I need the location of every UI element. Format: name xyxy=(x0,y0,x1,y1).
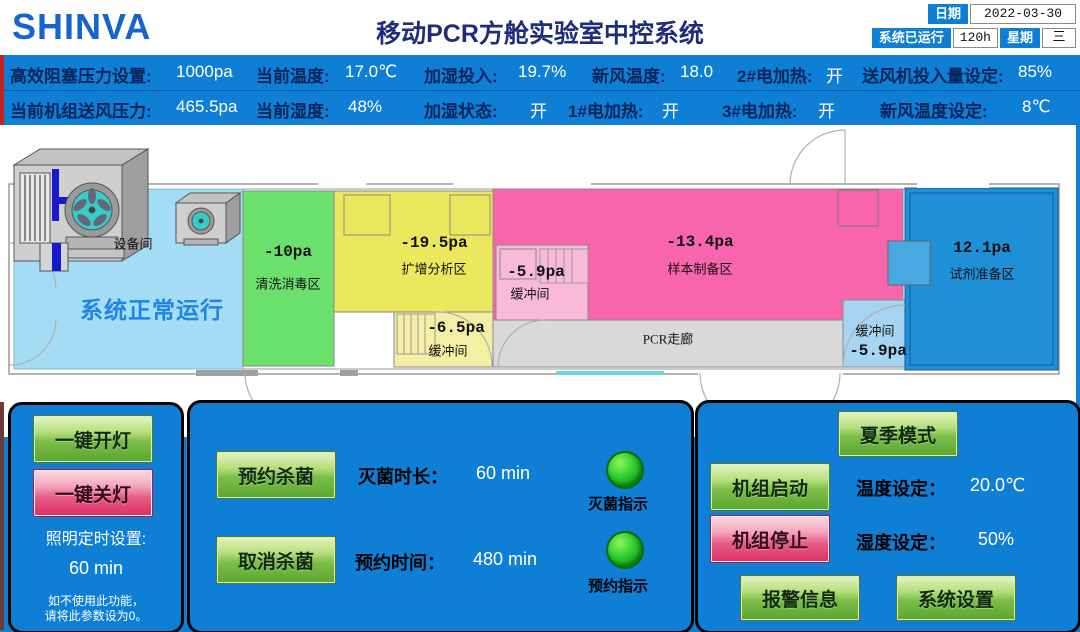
runtime-chip-label: 系统已运行 xyxy=(872,28,951,48)
humidify-state-value: 开 xyxy=(530,97,547,122)
sterilize-led-label: 灭菌指示 xyxy=(588,493,648,514)
sterilize-duration-value[interactable]: 60 min xyxy=(476,463,530,484)
floorplan-drawing xyxy=(0,125,1080,440)
header: SHINVA 移动PCR方舱实验室中控系统 日期 2022-03-30 系统已运… xyxy=(0,0,1080,55)
sample-buffer-pressure: -5.9pa xyxy=(507,263,565,281)
weekday-chip-label: 星期 xyxy=(1000,28,1040,48)
equipment-room-label: 设备间 xyxy=(113,234,152,253)
heater1-value: 开 xyxy=(662,97,679,122)
unit-supply-pressure-value: 465.5pa xyxy=(176,97,237,117)
supply-fan-set-value[interactable]: 85% xyxy=(1018,62,1052,82)
fresh-air-temp-value: 18.0 xyxy=(680,62,713,82)
unit-stop-button[interactable]: 机组停止 xyxy=(710,515,830,563)
date-value-box: 2022-03-30 xyxy=(970,4,1076,24)
humidity-set-value[interactable]: 50% xyxy=(978,529,1014,550)
window-strip xyxy=(556,371,664,375)
runtime-row: 系统已运行 120h 星期 三 xyxy=(872,28,1076,48)
lighting-panel: 一键开灯 一键关灯 照明定时设置: 60 min 如不使用此功能， 请将此参数设… xyxy=(8,402,184,632)
status-bar: 高效阻塞压力设置: 1000pa 当前温度: 17.0℃ 加湿投入: 19.7%… xyxy=(0,55,1080,125)
hepa-pressure-set-value[interactable]: 1000pa xyxy=(176,62,233,82)
floorplan: 设备间 系统正常运行 -10pa 清洗消毒区 -19.5pa 扩增分析区 -6.… xyxy=(0,125,1080,440)
lighting-note-line2: 请将此参数设为0。 xyxy=(11,607,181,624)
humidity-set-label: 湿度设定： xyxy=(856,529,946,555)
sterilize-duration-label: 灭菌时长： xyxy=(358,463,448,489)
reagent-room-pressure: 12.1pa xyxy=(953,239,1011,257)
system-settings-button[interactable]: 系统设置 xyxy=(896,575,1016,621)
temp-set-label: 温度设定： xyxy=(856,475,946,501)
fresh-air-temp-set-label: 新风温度设定: xyxy=(880,97,988,122)
amplify-room-pressure: -19.5pa xyxy=(400,234,467,252)
pass-box-icon xyxy=(450,195,490,235)
pass-box-icon xyxy=(344,195,390,235)
sample-buffer-name: 缓冲间 xyxy=(510,284,549,303)
amplify-room-name: 扩增分析区 xyxy=(401,259,466,278)
reserve-time-value[interactable]: 480 min xyxy=(473,549,537,570)
left-edge-strip xyxy=(0,402,4,630)
temp-set-value[interactable]: 20.0℃ xyxy=(970,475,1025,496)
header-info: 日期 2022-03-30 系统已运行 120h 星期 三 xyxy=(872,4,1076,48)
reserve-led-label: 预约指示 xyxy=(588,575,648,596)
corridor-name: PCR走廊 xyxy=(643,329,694,348)
clean-room-pressure: -10pa xyxy=(264,243,312,261)
current-humidity-label: 当前湿度: xyxy=(256,97,330,122)
status-row-1: 高效阻塞压力设置: 1000pa 当前温度: 17.0℃ 加湿投入: 19.7%… xyxy=(0,55,1080,91)
humidify-state-label: 加湿状态: xyxy=(424,97,498,122)
pass-box-icon xyxy=(838,190,878,226)
clean-room-name: 清洗消毒区 xyxy=(255,274,320,293)
pass-box-icon xyxy=(888,241,930,285)
app-root: SHINVA 移动PCR方舱实验室中控系统 日期 2022-03-30 系统已运… xyxy=(0,0,1080,632)
sample-room-name: 样本制备区 xyxy=(667,259,732,278)
fresh-air-temp-label: 新风温度: xyxy=(592,62,666,87)
date-row: 日期 2022-03-30 xyxy=(928,4,1076,24)
hvac-panel: 夏季模式 机组启动 温度设定： 20.0℃ 机组停止 湿度设定： 50% 报警信… xyxy=(695,400,1080,632)
reagent-buffer-pressure: -5.9pa xyxy=(849,342,907,360)
lighting-timer-label: 照明定时设置: xyxy=(11,525,181,549)
reserve-led-indicator xyxy=(606,531,644,569)
status-row-2: 当前机组送风压力: 465.5pa 当前湿度: 48% 加湿状态: 开 1#电加… xyxy=(0,90,1080,125)
reagent-buffer-name: 缓冲间 xyxy=(855,321,894,340)
heater3-value: 开 xyxy=(818,97,835,122)
weekday-value-box: 三 xyxy=(1042,28,1076,48)
sterilize-led-indicator xyxy=(606,451,644,489)
sterilization-panel: 预约杀菌 灭菌时长： 60 min 灭菌指示 取消杀菌 预约时间： 480 mi… xyxy=(187,400,694,632)
unit-start-button[interactable]: 机组启动 xyxy=(710,463,830,511)
heater1-label: 1#电加热: xyxy=(568,97,644,122)
heater2-value: 开 xyxy=(826,62,843,87)
hvac-unit-large-icon xyxy=(14,149,148,271)
room-corridor xyxy=(493,320,903,367)
heater2-label: 2#电加热: xyxy=(737,62,813,87)
lights-on-button[interactable]: 一键开灯 xyxy=(33,415,153,463)
supply-fan-set-label: 送风机投入量设定: xyxy=(862,62,1004,87)
lighting-timer-value[interactable]: 60 min xyxy=(11,558,181,579)
amplify-buffer-name: 缓冲间 xyxy=(428,341,467,360)
current-temp-label: 当前温度: xyxy=(256,62,330,87)
alarm-info-button[interactable]: 报警信息 xyxy=(740,575,860,621)
hvac-unit-small-icon xyxy=(176,193,240,245)
humidify-output-value: 19.7% xyxy=(518,62,566,82)
fresh-air-temp-set-value[interactable]: 8℃ xyxy=(1022,97,1051,117)
date-chip-label: 日期 xyxy=(928,4,968,24)
heater3-label: 3#电加热: xyxy=(722,97,798,122)
cancel-sterilize-button[interactable]: 取消杀菌 xyxy=(216,536,336,584)
current-humidity-value: 48% xyxy=(348,97,382,117)
status-left-accent xyxy=(0,55,4,125)
sample-room-pressure: -13.4pa xyxy=(666,233,733,251)
humidify-output-label: 加湿投入: xyxy=(424,62,498,87)
current-temp-value: 17.0℃ xyxy=(345,62,397,82)
reserve-sterilize-button[interactable]: 预约杀菌 xyxy=(216,451,336,499)
amplify-buffer-pressure: -6.5pa xyxy=(427,319,485,337)
runtime-value-box: 120h xyxy=(953,28,998,48)
summer-mode-button[interactable]: 夏季模式 xyxy=(838,411,958,457)
hepa-pressure-set-label: 高效阻塞压力设置: xyxy=(10,62,152,87)
system-status-text: 系统正常运行 xyxy=(80,291,224,325)
unit-supply-pressure-label: 当前机组送风压力: xyxy=(10,97,152,122)
reagent-room-name: 试剂准备区 xyxy=(949,264,1014,283)
reserve-time-label: 预约时间： xyxy=(355,549,445,575)
lights-off-button[interactable]: 一键关灯 xyxy=(33,469,153,517)
